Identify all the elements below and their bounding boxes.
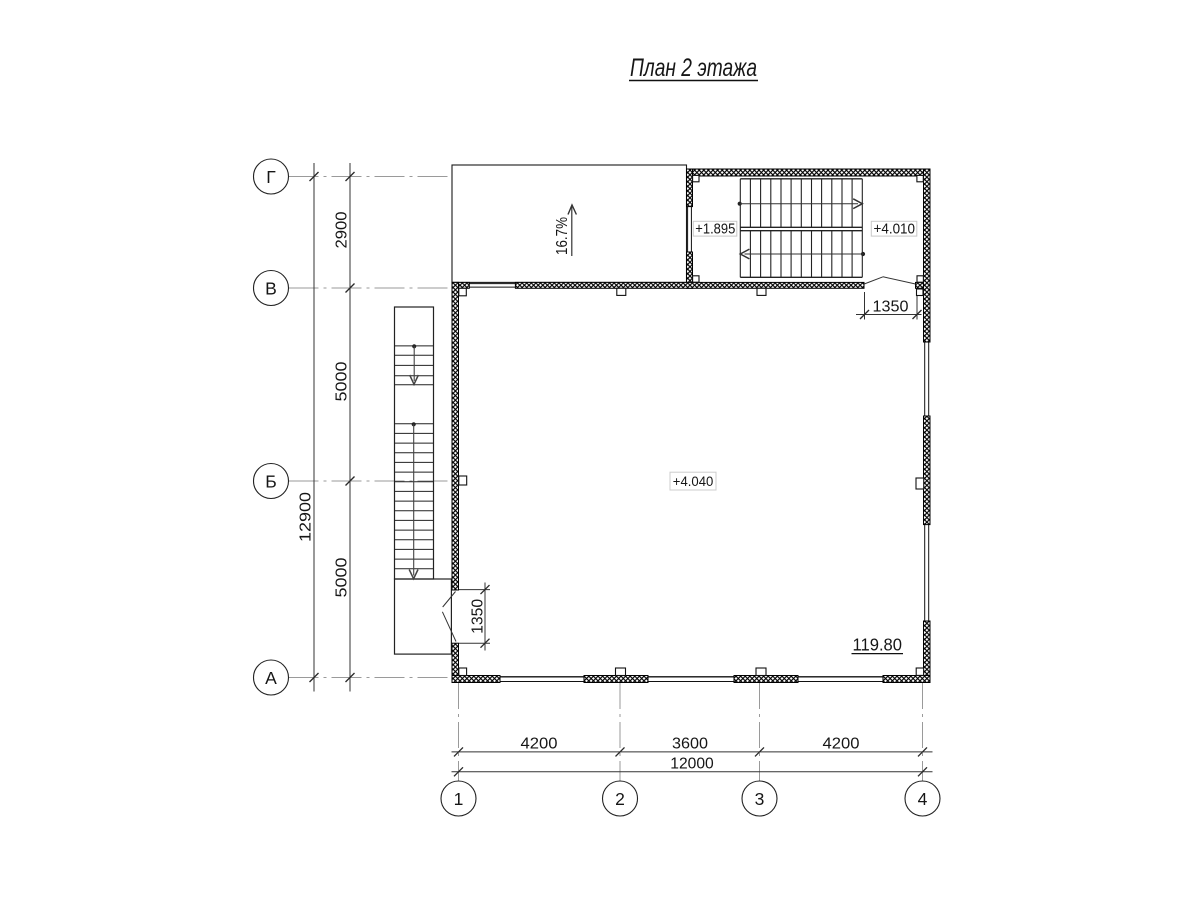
svg-text:В: В bbox=[265, 279, 277, 299]
svg-text:4200: 4200 bbox=[521, 735, 558, 752]
svg-text:4200: 4200 bbox=[823, 735, 860, 752]
svg-text:1350: 1350 bbox=[470, 599, 487, 634]
svg-text:А: А bbox=[265, 668, 277, 688]
svg-text:12900: 12900 bbox=[298, 492, 315, 542]
svg-text:119.80: 119.80 bbox=[853, 634, 903, 654]
svg-text:Г: Г bbox=[266, 167, 276, 187]
svg-text:3600: 3600 bbox=[672, 735, 708, 752]
svg-text:1350: 1350 bbox=[873, 299, 909, 316]
svg-text:5000: 5000 bbox=[334, 361, 351, 401]
svg-text:5000: 5000 bbox=[334, 557, 351, 597]
svg-text:12000: 12000 bbox=[670, 755, 714, 772]
svg-text:1: 1 bbox=[454, 789, 464, 809]
svg-text:+4.040: +4.040 bbox=[673, 474, 714, 489]
svg-text:План 2 этажа: План 2 этажа bbox=[630, 54, 757, 82]
svg-text:Б: Б bbox=[265, 472, 276, 492]
svg-text:2: 2 bbox=[615, 789, 625, 809]
svg-text:3: 3 bbox=[755, 789, 765, 809]
svg-text:16.7%: 16.7% bbox=[554, 217, 571, 255]
svg-text:+1.895: +1.895 bbox=[695, 221, 735, 238]
svg-text:+4.010: +4.010 bbox=[874, 221, 916, 238]
svg-text:2900: 2900 bbox=[334, 211, 351, 248]
svg-text:4: 4 bbox=[918, 789, 928, 809]
